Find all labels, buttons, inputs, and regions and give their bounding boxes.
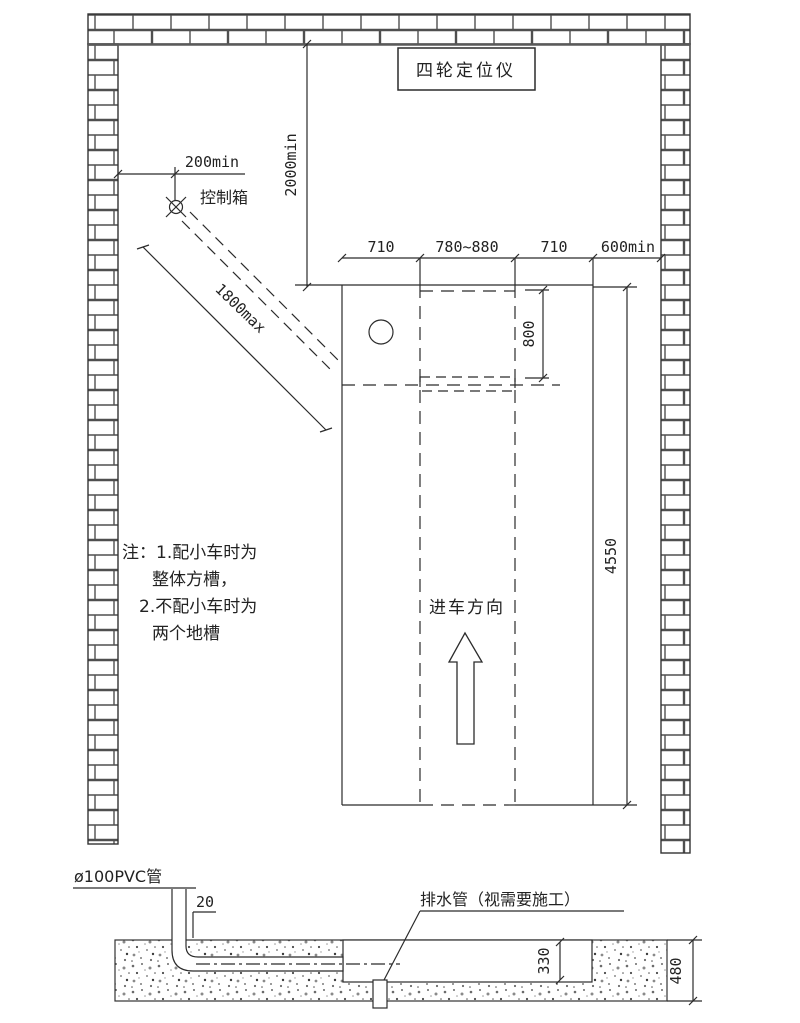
note-line-2: 整体方槽，: [152, 570, 237, 590]
note-line-1: 注：1.配小车时为: [122, 543, 257, 563]
note-line-3: 2.不配小车时为: [139, 597, 257, 617]
turntable-circle: [369, 320, 393, 344]
dim-800: 800: [520, 320, 538, 347]
dim-330: 330: [535, 947, 553, 974]
dim-1800max-line: [143, 247, 326, 430]
notes-block: 注：1.配小车时为 整体方槽， 2.不配小车时为 两个地槽: [122, 543, 257, 644]
installation-drawing: 四轮定位仪 710 780~880 710 600min: [0, 0, 800, 1023]
pvc-pipe-label: ø100PVC管: [74, 867, 162, 886]
dim-600min: 600min: [601, 238, 655, 256]
cross-section: [73, 888, 702, 1008]
drawing-title: 四轮定位仪: [416, 61, 516, 81]
note-line-4: 两个地槽: [152, 624, 220, 644]
entry-arrow: [449, 633, 482, 744]
dim-710-right: 710: [540, 238, 567, 256]
control-box-label: 控制箱: [200, 188, 248, 207]
dim-780-880: 780~880: [435, 238, 498, 256]
dim-2000min: 2000min: [282, 133, 300, 196]
top-wall: [88, 14, 690, 44]
dim-1800max: 1800max: [211, 280, 269, 337]
left-wall: [88, 44, 118, 844]
dim-4550: 4550: [602, 538, 620, 574]
cable-dashed-2: [182, 221, 334, 373]
slip-plate-dashed-rect: [420, 377, 515, 391]
dim-2000min-lines: [303, 40, 311, 291]
right-wall: [661, 44, 690, 853]
dim-200min: 200min: [185, 153, 239, 171]
drain-pipe-label: 排水管（视需要施工）: [420, 890, 580, 909]
room-walls: [88, 14, 690, 853]
drain-pipe: [373, 980, 387, 1008]
dim-710-left: 710: [367, 238, 394, 256]
pit-trench-section: [343, 940, 592, 982]
cable-dashed-1: [190, 212, 342, 364]
dim-20: 20: [196, 893, 214, 911]
direction-label: 进车方向: [429, 598, 505, 618]
dim-480: 480: [667, 957, 685, 984]
title-box: 四轮定位仪: [398, 48, 535, 90]
